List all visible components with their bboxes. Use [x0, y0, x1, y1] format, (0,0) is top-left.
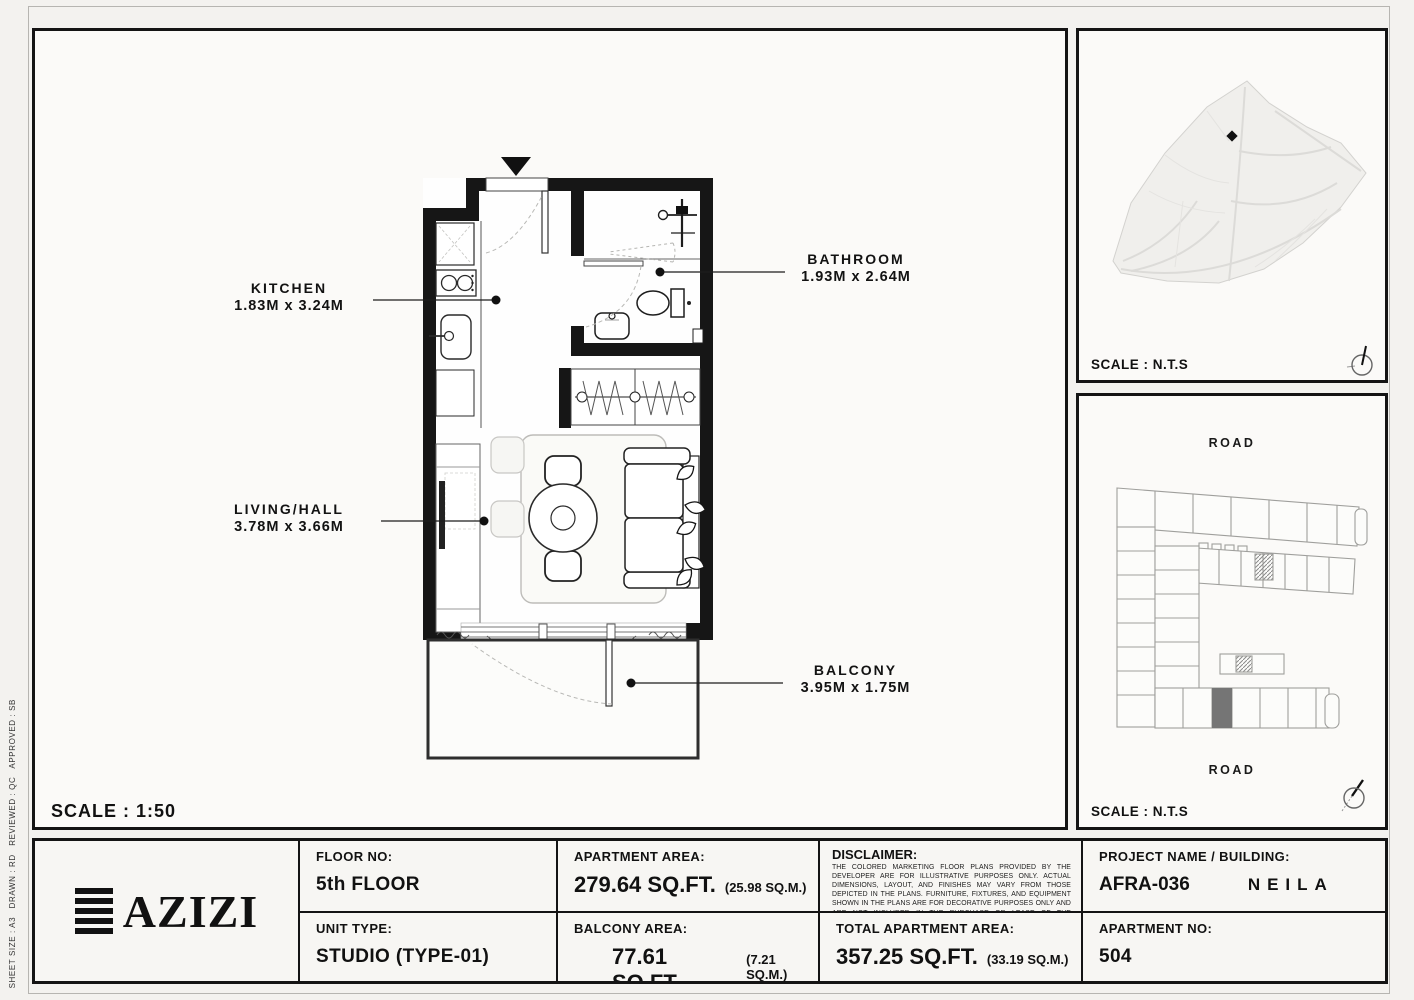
tv-console-symbol [436, 444, 480, 632]
apartment-no-value: 504 [1099, 946, 1385, 968]
plan-scale-label: SCALE : 1:50 [51, 801, 176, 822]
balcony-area-metric: (7.21 SQ.M.) [746, 952, 818, 981]
key-plan-scale-label: SCALE : N.T.S [1091, 804, 1188, 819]
balcony-area-cell: BALCONY AREA: 77.61 SQ.FT. (7.21 SQ.M.) [556, 911, 818, 981]
total-area-metric: (33.19 SQ.M.) [987, 952, 1069, 967]
unit-type-cell: UNIT TYPE: STUDIO (TYPE-01) [298, 911, 556, 981]
balcony-area-value: 77.61 SQ.FT. [612, 944, 737, 981]
title-block: AZIZI FLOOR NO: 5th FLOOR APARTMENT AREA… [32, 838, 1388, 984]
core-hatch-2 [1236, 656, 1252, 672]
project-name-cell: PROJECT NAME / BUILDING: AFRA-036 NEILA [1081, 841, 1385, 911]
floor-no-cell: FLOOR NO: 5th FLOOR [298, 841, 556, 911]
balcony-label: BALCONY 3.95M x 1.75M [788, 662, 923, 696]
highlighted-unit [1212, 688, 1232, 728]
tv-symbol [439, 481, 445, 549]
key-plan-panel: ROAD [1076, 393, 1388, 830]
project-name-label: PROJECT NAME / BUILDING: [1099, 849, 1385, 864]
site-map-drawing [1079, 31, 1385, 380]
project-name-value: AFRA-036 [1099, 874, 1190, 896]
apartment-area-label: APARTMENT AREA: [574, 849, 818, 864]
site-map-scale-label: SCALE : N.T.S [1091, 357, 1188, 372]
north-arrow-icon [1337, 774, 1373, 818]
washbasin-symbol [595, 313, 629, 339]
apartment-area-value: 279.64 SQ.FT. [574, 872, 716, 898]
stove-symbol [436, 270, 476, 296]
floor-no-label: FLOOR NO: [316, 849, 556, 864]
site-map-panel: SCALE : N.T.S [1076, 28, 1388, 383]
bath-shelf-symbol [693, 329, 703, 343]
apartment-area-metric: (25.98 SQ.M.) [725, 880, 807, 895]
wardrobe-symbol [571, 369, 700, 425]
balcony-outline [428, 640, 698, 758]
logo-text: AZIZI [123, 885, 258, 938]
developer-logo: AZIZI [35, 841, 298, 981]
core-hatch-1 [1255, 554, 1273, 580]
living-hall-label: LIVING/HALL 3.78M x 3.66M [224, 501, 354, 535]
floor-plan-panel: KITCHEN 1.83M x 3.24M BATHROOM 1.93M x 2… [32, 28, 1068, 830]
bathroom-label: BATHROOM 1.93M x 2.64M [791, 251, 921, 285]
sheet-margin-info: SHEET SIZE : A3 DRAWN : RD REVIEWED : QC… [8, 699, 17, 988]
entry-marker-icon [501, 157, 531, 176]
north-arrow-icon [1345, 339, 1381, 381]
unit-type-value: STUDIO (TYPE-01) [316, 946, 556, 968]
kitchen-label: KITCHEN 1.83M x 3.24M [224, 280, 354, 314]
balcony-area-label: BALCONY AREA: [574, 921, 818, 936]
sofa-symbol [624, 448, 707, 588]
floor-plan-drawing [35, 31, 1065, 827]
floor-no-value: 5th FLOOR [316, 874, 556, 896]
total-area-label: TOTAL APARTMENT AREA: [836, 921, 1081, 936]
apartment-no-label: APARTMENT NO: [1099, 921, 1385, 936]
disclaimer-text: THE COLORED MARKETING FLOOR PLANS PROVID… [832, 863, 1071, 911]
fridge-symbol [436, 223, 474, 265]
drawing-sheet: SHEET SIZE : A3 DRAWN : RD REVIEWED : QC… [0, 0, 1414, 1000]
building-name-value: NEILA [1248, 875, 1334, 895]
azizi-bars-icon [75, 888, 113, 935]
total-area-cell: TOTAL APARTMENT AREA: 357.25 SQ.FT. (33.… [818, 911, 1081, 981]
disclaimer-cell: DISCLAIMER: THE COLORED MARKETING FLOOR … [818, 841, 1081, 911]
disclaimer-label: DISCLAIMER: [832, 847, 1071, 862]
kitchen-cabinet-symbol [436, 370, 474, 416]
unit-type-label: UNIT TYPE: [316, 921, 556, 936]
apartment-no-cell: APARTMENT NO: 504 [1081, 911, 1385, 981]
sliding-door [461, 623, 686, 640]
apartment-area-cell: APARTMENT AREA: 279.64 SQ.FT. (25.98 SQ.… [556, 841, 818, 911]
road-label-bottom: ROAD [1079, 763, 1385, 777]
total-area-value: 357.25 SQ.FT. [836, 944, 978, 970]
